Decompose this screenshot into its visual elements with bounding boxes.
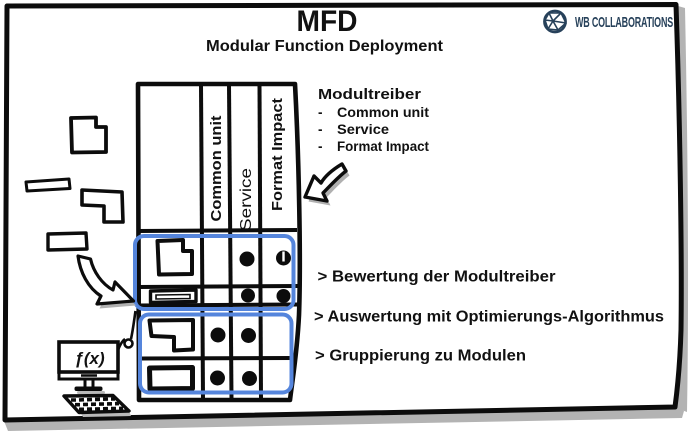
svg-text:Service: Service: [238, 168, 255, 231]
svg-text:Format Impact: Format Impact: [270, 98, 286, 211]
svg-text:ƒ(x): ƒ(x): [74, 349, 105, 368]
svg-text:Common unit: Common unit: [208, 116, 225, 222]
svg-text:Service: Service: [337, 122, 390, 137]
svg-text:-: -: [318, 139, 323, 154]
svg-text:Modular Function Deployment: Modular Function Deployment: [206, 38, 444, 55]
svg-text:WB COLLABORATIONS: WB COLLABORATIONS: [575, 14, 673, 31]
svg-text:> Auswertung mit Optimierungs-: > Auswertung mit Optimierungs-Algorithmu…: [314, 309, 664, 326]
svg-text:-: -: [318, 122, 323, 137]
svg-text:Common unit: Common unit: [337, 105, 430, 120]
svg-text:-: -: [318, 105, 323, 120]
svg-text:MFD: MFD: [297, 5, 358, 38]
svg-text:Format Impact: Format Impact: [337, 139, 429, 154]
svg-text:> Gruppierung zu Modulen: > Gruppierung zu Modulen: [315, 348, 526, 365]
svg-text:> Bewertung der Modultreiber: > Bewertung der Modultreiber: [318, 269, 556, 286]
svg-text:Modultreiber: Modultreiber: [318, 87, 421, 103]
